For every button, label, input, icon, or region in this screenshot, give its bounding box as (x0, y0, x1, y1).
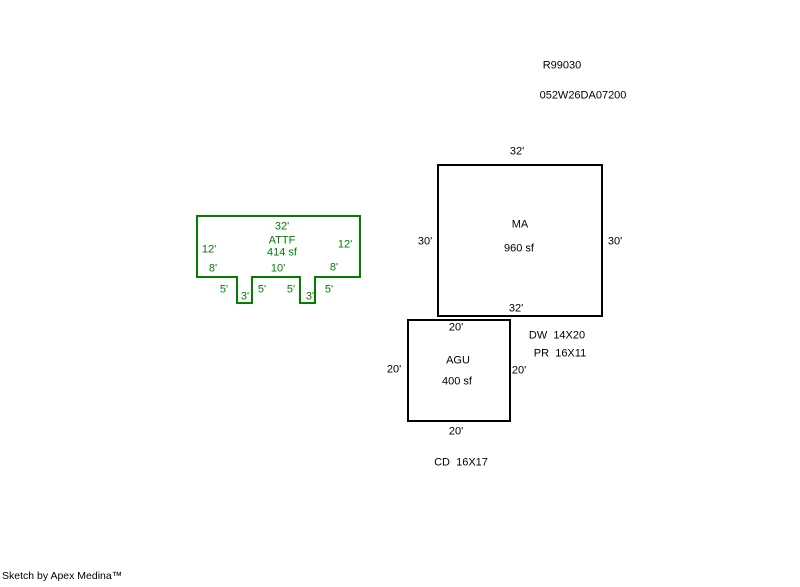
sketch-page: R99030052W26DA0720032'ATTF414 sf12'12'8'… (0, 0, 800, 587)
agu-outline (408, 320, 510, 421)
attf-outline (197, 216, 360, 303)
ma-outline (438, 165, 602, 316)
sketch-canvas (0, 0, 800, 587)
sketch-credit: Sketch by Apex Medina™ (2, 571, 122, 582)
